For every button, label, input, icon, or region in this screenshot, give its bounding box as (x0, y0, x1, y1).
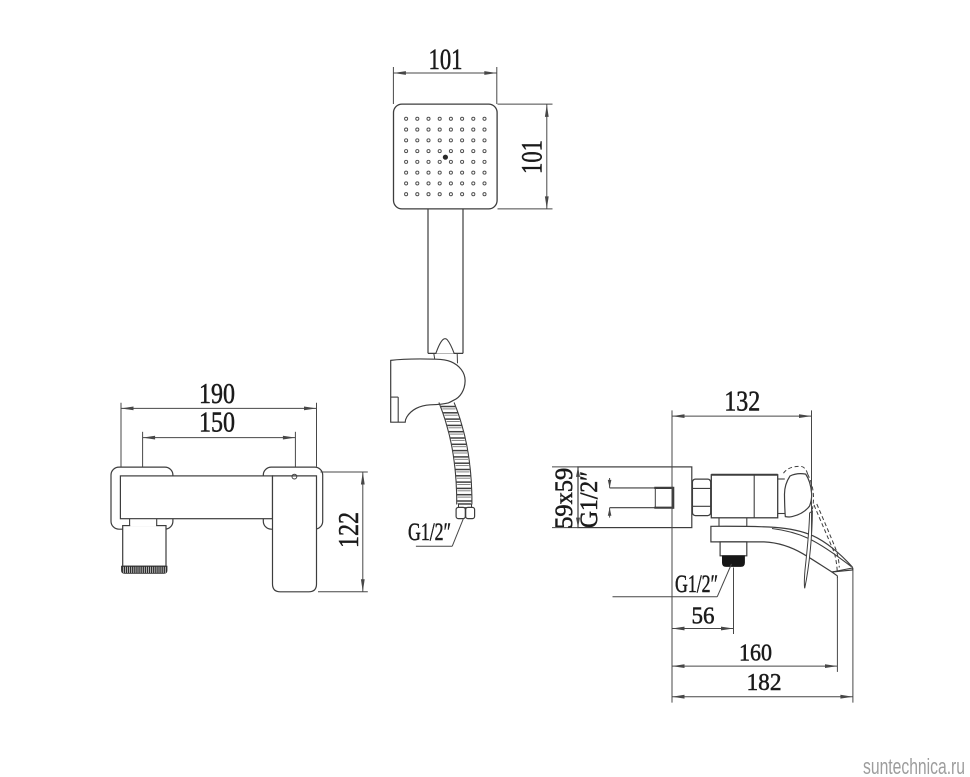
svg-text:132: 132 (724, 387, 760, 418)
svg-text:suntechnica.ru: suntechnica.ru (863, 754, 965, 777)
svg-text:190: 190 (199, 379, 235, 410)
svg-text:59x59: 59x59 (551, 468, 578, 529)
svg-text:150: 150 (199, 408, 235, 439)
svg-text:101: 101 (516, 140, 549, 174)
svg-text:182: 182 (747, 670, 782, 696)
svg-text:101: 101 (429, 43, 463, 76)
svg-text:56: 56 (692, 603, 715, 629)
svg-text:G1/2″: G1/2″ (576, 471, 603, 528)
svg-text:G1/2″: G1/2″ (408, 519, 451, 546)
svg-text:G1/2″: G1/2″ (675, 571, 718, 598)
svg-text:160: 160 (739, 640, 772, 666)
svg-text:122: 122 (334, 512, 365, 548)
